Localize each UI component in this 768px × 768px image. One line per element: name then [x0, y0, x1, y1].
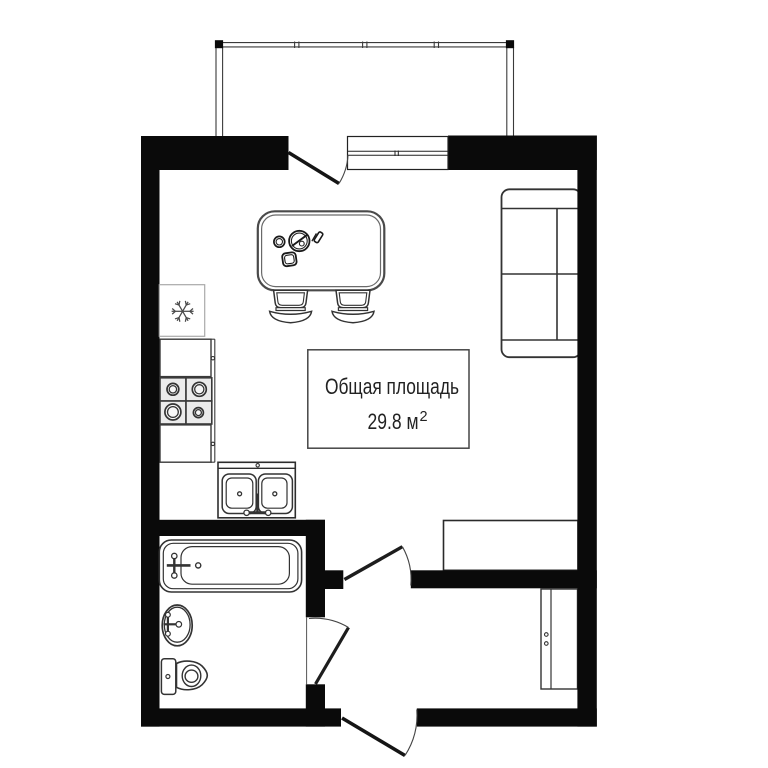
svg-text:2: 2 [420, 409, 428, 425]
svg-text:29.8 м: 29.8 м [368, 409, 419, 434]
svg-text:Общая площадь: Общая площадь [325, 374, 459, 399]
